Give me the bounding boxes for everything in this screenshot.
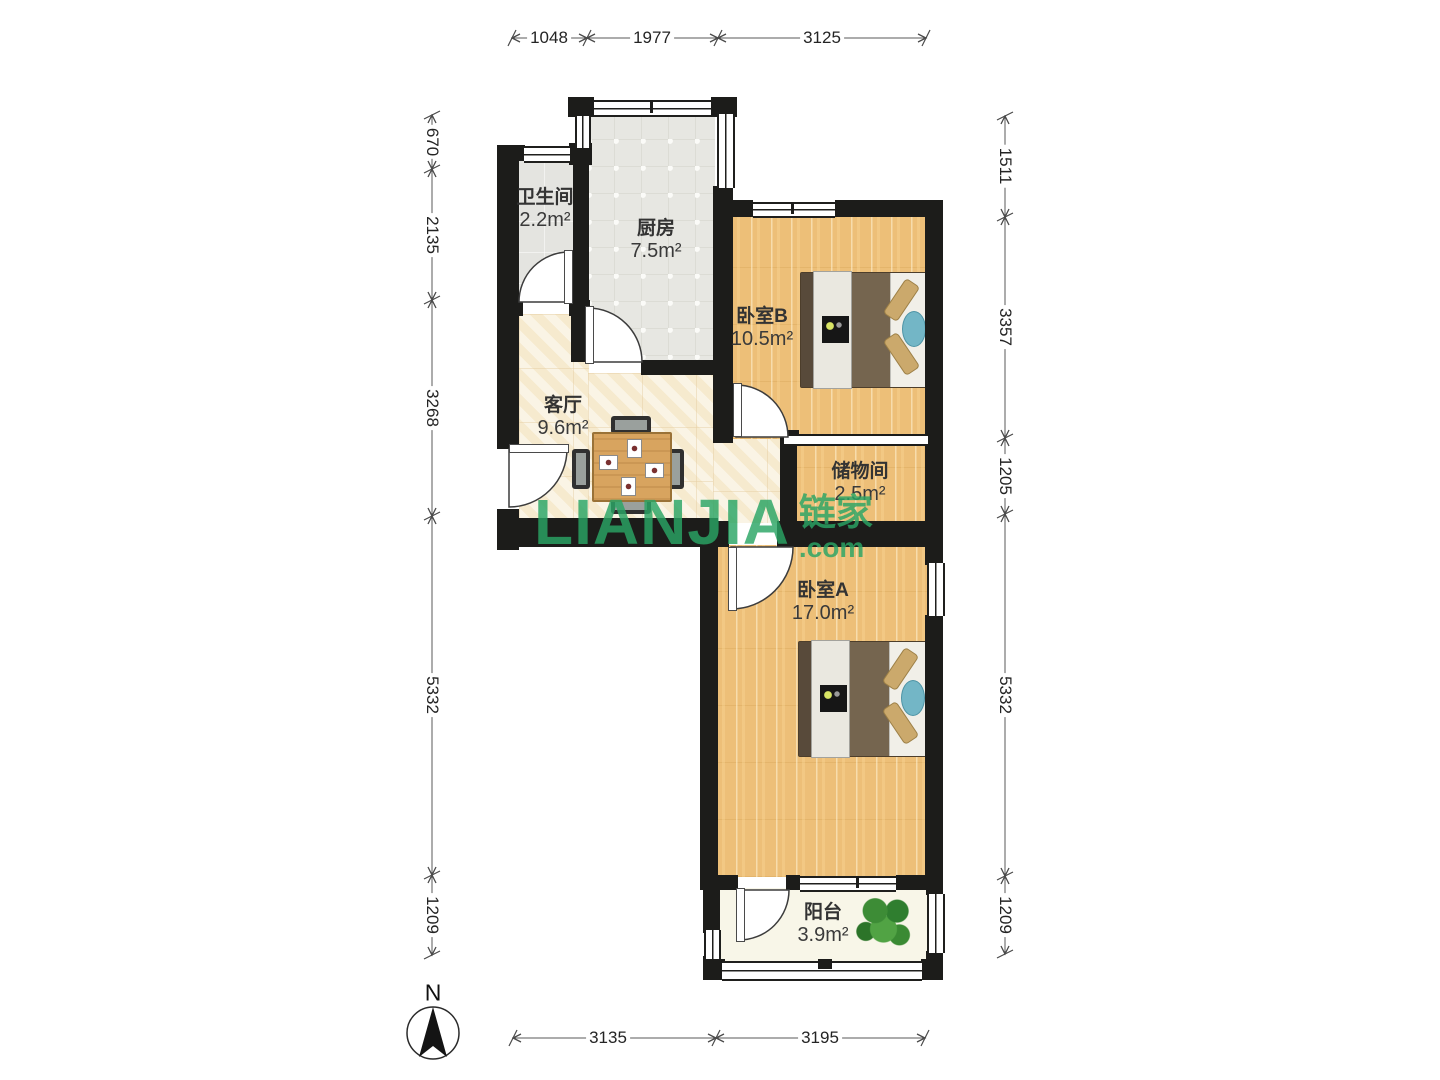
- dimension-label: 3135: [586, 1028, 630, 1048]
- window: [717, 114, 735, 188]
- dimension-label: 5332: [995, 673, 1015, 717]
- wall: [497, 518, 718, 547]
- dimension-label: 1205: [995, 454, 1015, 498]
- wall: [835, 200, 943, 217]
- room-name: 卧室A: [792, 580, 854, 602]
- wall: [497, 300, 523, 316]
- room-area: 10.5m²: [731, 328, 793, 352]
- room-area: 2.5m²: [831, 483, 888, 507]
- wall: [786, 875, 800, 890]
- window: [524, 146, 570, 163]
- room-area: 3.9m²: [797, 924, 848, 948]
- cushion: [902, 311, 926, 347]
- room-name: 卧室B: [731, 306, 793, 328]
- dimension-label: 670: [422, 125, 442, 159]
- room-name: 储物间: [831, 461, 888, 483]
- door-leaf-bedroom-a: [728, 547, 737, 611]
- window: [704, 930, 721, 959]
- window: [927, 563, 945, 616]
- room-label-bedroom-a: 卧室A 17.0m²: [792, 580, 854, 626]
- place-setting: [621, 477, 636, 496]
- room-name: 阳台: [797, 902, 848, 924]
- bed-frame: [799, 642, 811, 756]
- wall: [926, 951, 943, 980]
- dimension-label: 5332: [422, 673, 442, 717]
- cushion: [901, 680, 925, 716]
- wall: [703, 875, 720, 933]
- bed-tv-stand: [822, 316, 849, 343]
- compass: [407, 1007, 459, 1059]
- window-mullion: [791, 202, 794, 214]
- bed-tv-stand: [820, 685, 847, 712]
- dimension-label: 3357: [995, 305, 1015, 349]
- room-name: 卫生间: [516, 187, 573, 209]
- window-mullion: [818, 959, 832, 969]
- room-label-kitchen: 厨房 7.5m²: [630, 218, 681, 264]
- compass-north-label: N: [425, 980, 442, 1007]
- room-label-livingroom: 客厅 9.6m²: [537, 395, 588, 441]
- window-mullion: [650, 100, 653, 113]
- room-area: 7.5m²: [630, 240, 681, 264]
- wall: [713, 200, 753, 217]
- door-leaf-bathroom: [564, 250, 573, 304]
- wall: [777, 521, 943, 547]
- dining-chair: [572, 449, 590, 489]
- room-name: 厨房: [630, 218, 681, 240]
- place-setting: [627, 439, 642, 458]
- door-leaf-kitchen: [585, 306, 594, 364]
- wall: [641, 360, 717, 375]
- bed-bedroom-a: [798, 641, 929, 757]
- bed-frame: [801, 273, 813, 387]
- door-leaf-entry: [509, 444, 569, 453]
- place-setting: [645, 463, 664, 478]
- dimension-label: 3125: [800, 28, 844, 48]
- wall: [568, 97, 594, 117]
- room-area: 17.0m²: [792, 602, 854, 626]
- window: [575, 116, 591, 148]
- wall: [700, 521, 729, 547]
- dimension-label: 1511: [995, 145, 1015, 188]
- dimension-label: 1977: [630, 28, 674, 48]
- wall: [925, 615, 943, 877]
- room-area: 2.2m²: [516, 209, 573, 233]
- room-label-storage: 储物间 2.5m²: [831, 461, 888, 507]
- dimension-label: 1048: [527, 28, 571, 48]
- potted-plant: [849, 886, 920, 957]
- dimension-label: 3195: [798, 1028, 842, 1048]
- room-label-bedroom-b: 卧室B 10.5m²: [731, 306, 793, 352]
- compass-needle: [419, 1007, 447, 1057]
- wall: [573, 163, 589, 302]
- dimension-label: 1209: [422, 893, 442, 937]
- wall: [700, 547, 718, 877]
- room-label-bathroom: 卫生间 2.2m²: [516, 187, 573, 233]
- room-name: 客厅: [537, 395, 588, 417]
- door-leaf-bedroom-b: [733, 383, 742, 437]
- door-leaf-balcony: [736, 888, 745, 942]
- wall: [926, 875, 943, 895]
- wall: [925, 217, 943, 565]
- dimension-label: 3268: [422, 386, 442, 430]
- window: [927, 894, 945, 953]
- dimension-label: 2135: [422, 213, 442, 257]
- bed-bedroom-b: [800, 272, 930, 388]
- room-label-balcony: 阳台 3.9m²: [797, 902, 848, 948]
- window: [753, 202, 835, 218]
- room-area: 9.6m²: [537, 417, 588, 441]
- partition-wall: [784, 434, 928, 446]
- dimension-label: 1209: [995, 893, 1015, 937]
- hallway-floor: [713, 437, 783, 523]
- window-mullion: [856, 876, 859, 888]
- floorplan: 卫生间 2.2m² 厨房 7.5m² 卧室B 10.5m² 客厅 9.6m² 储…: [0, 0, 1440, 1080]
- window: [800, 876, 896, 892]
- place-setting: [599, 455, 618, 470]
